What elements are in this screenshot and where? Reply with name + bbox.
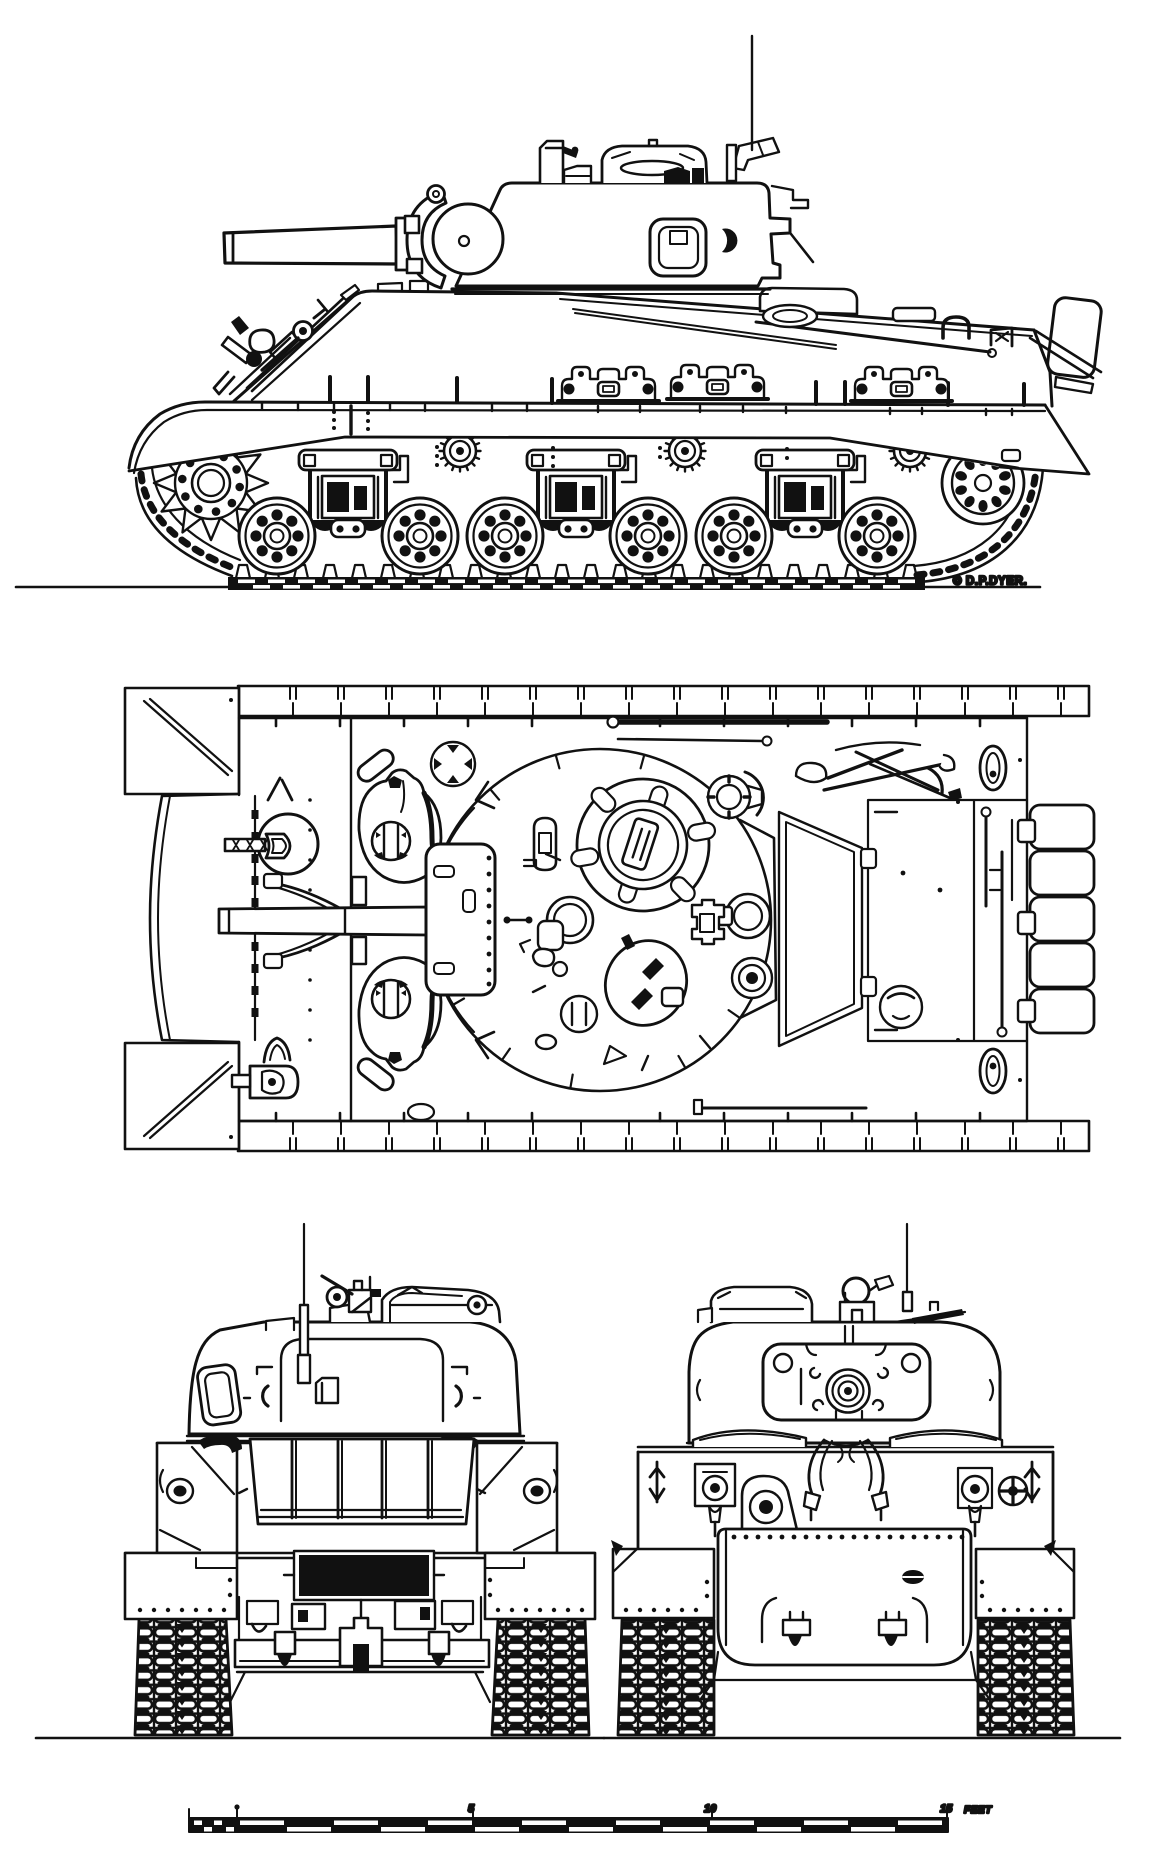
svg-text:5: 5 bbox=[468, 1803, 475, 1815]
svg-text:15: 15 bbox=[940, 1803, 953, 1815]
svg-text:FEET: FEET bbox=[964, 1805, 992, 1816]
svg-text:10: 10 bbox=[704, 1803, 717, 1815]
svg-text:© D.P.DYER.: © D.P.DYER. bbox=[953, 576, 1027, 588]
